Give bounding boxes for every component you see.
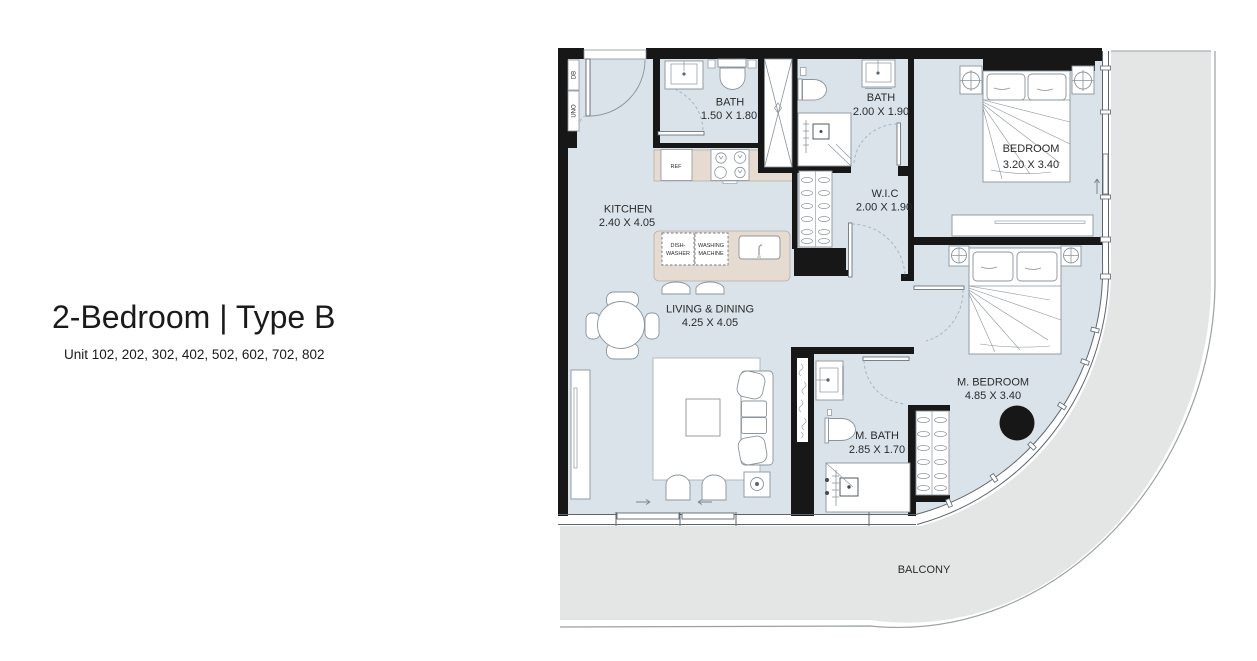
svg-text:DB: DB (572, 71, 578, 79)
svg-text:2.85 X 1.70: 2.85 X 1.70 (849, 444, 905, 456)
svg-text:REF: REF (671, 164, 683, 170)
svg-text:M. BATH: M. BATH (855, 430, 899, 442)
svg-text:WASHING: WASHING (698, 243, 724, 249)
svg-text:KITCHEN: KITCHEN (604, 204, 652, 216)
svg-text:M. BEDROOM: M. BEDROOM (957, 377, 1029, 389)
svg-text:3.20 X 3.40: 3.20 X 3.40 (1003, 159, 1059, 171)
svg-text:BEDROOM: BEDROOM (1003, 143, 1060, 155)
svg-text:UNO: UNO (572, 104, 578, 118)
svg-text:1.50 X 1.80: 1.50 X 1.80 (701, 110, 757, 122)
svg-text:W.I.C: W.I.C (872, 188, 899, 200)
svg-text:4.85 X 3.40: 4.85 X 3.40 (965, 390, 1021, 402)
svg-text:2.00 X 1.90: 2.00 X 1.90 (856, 202, 912, 214)
svg-text:BALCONY: BALCONY (898, 564, 951, 576)
svg-text:2.00 X 1.90: 2.00 X 1.90 (853, 106, 909, 118)
svg-text:LIVING & DINING: LIVING & DINING (666, 304, 754, 316)
svg-text:BATH: BATH (716, 97, 745, 109)
svg-text:BATH: BATH (867, 92, 896, 104)
svg-text:4.25 X 4.05: 4.25 X 4.05 (682, 317, 738, 329)
svg-text:WASHER: WASHER (666, 251, 690, 257)
svg-text:MACHINE: MACHINE (698, 251, 724, 257)
svg-text:DISH-: DISH- (671, 243, 686, 249)
svg-text:2.40 X 4.05: 2.40 X 4.05 (599, 217, 655, 229)
